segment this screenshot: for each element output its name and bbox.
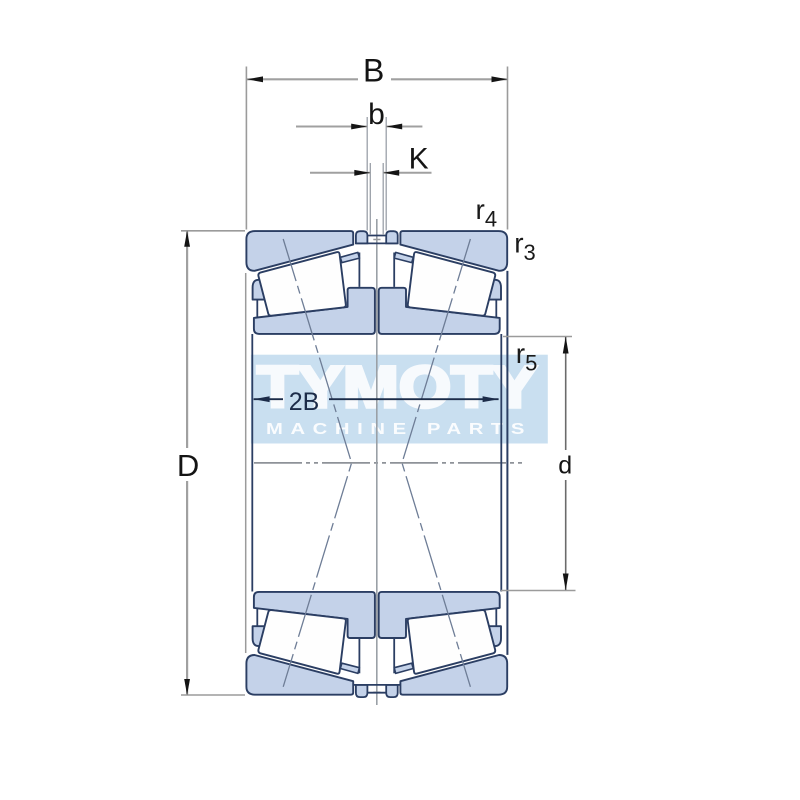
svg-text:r4: r4 xyxy=(476,194,498,232)
svg-text:B: B xyxy=(363,52,384,88)
svg-text:K: K xyxy=(409,142,429,175)
svg-text:d: d xyxy=(558,451,572,479)
svg-text:2B: 2B xyxy=(289,388,320,416)
svg-text:MACHINE PARTS: MACHINE PARTS xyxy=(266,421,532,438)
svg-text:r3: r3 xyxy=(514,228,536,266)
svg-text:D: D xyxy=(177,448,199,483)
svg-text:b: b xyxy=(368,98,385,131)
